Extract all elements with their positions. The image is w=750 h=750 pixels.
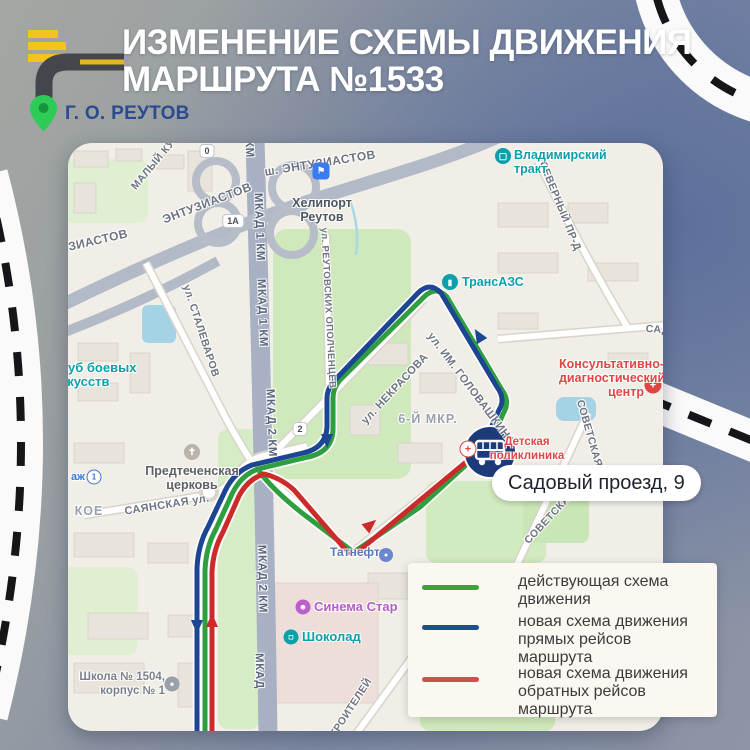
cafe-icon: ◘: [284, 630, 299, 645]
church-icon: ✝: [184, 444, 200, 460]
title-line1: ИЗМЕНЕНИЕ СХЕМЫ ДВИЖЕНИЯ: [122, 24, 691, 61]
poi-detskaya-label: Детская поликлиника: [490, 435, 565, 463]
road-label-km: КМ: [242, 143, 255, 158]
poi-predtech-label: Предтеченская церковь: [145, 464, 238, 492]
poi-klub-label: Клуб боевых искусств: [68, 361, 136, 389]
poi-circle-icon: 1: [87, 470, 102, 485]
road-badge-0: 0: [199, 144, 214, 158]
clinic-cross-icon: +: [460, 441, 477, 458]
poi-cinema-label: Синема Стар: [314, 600, 398, 614]
location-label: Г. О. РЕУТОВ: [65, 103, 190, 125]
poi-azh-label: аж: [71, 470, 85, 484]
school-icon: ●: [165, 677, 180, 692]
stop-address-callout: Садовый проезд, 9: [492, 465, 701, 501]
mall-icon: ▢: [495, 148, 511, 164]
gas-station-icon: ●: [379, 548, 393, 562]
district-label-koe: КОЕ: [75, 504, 104, 518]
street-label-sado: САДО: [645, 323, 663, 337]
poi-vladimirsky-label: Владимирский тракт: [514, 148, 607, 176]
road-label-mkad1km: МКАД 1 КМ: [252, 193, 266, 262]
cinema-icon: ☻: [296, 600, 311, 615]
poi-kons-label: Консультативно- диагностический центр: [559, 357, 644, 399]
poster: { "header": { "title_line1": "ИЗМЕНЕНИЕ …: [0, 0, 750, 750]
title-line2: МАРШРУТА №1533: [122, 61, 691, 98]
road-label-mkad1km: МКАД 1 КМ: [255, 279, 269, 348]
district-label-mkr6: 6-Й МКР.: [398, 412, 458, 426]
road-label-mkad2km: МКАД 2 КМ: [264, 389, 278, 458]
poi-transazs-label: ТрансАЗС: [462, 275, 524, 289]
legend-label-current: действующая схема движения: [518, 573, 700, 609]
poi-school-label: Школа № 1504, корпус № 1: [79, 670, 165, 698]
poi-shokolad-label: Шоколад: [302, 630, 361, 644]
legend-item-return: новая схема движения обратных рейсов мар…: [422, 665, 700, 719]
road-badge-1a: 1А: [222, 214, 244, 228]
legend-label-forward: новая схема движения прямых рейсов маршр…: [518, 613, 700, 667]
mostransavto-logo: [28, 26, 124, 98]
road-badge-2: 2: [292, 422, 307, 436]
legend-item-current: действующая схема движения: [422, 573, 700, 609]
legend-swatch-blue: [422, 625, 479, 630]
helipad-icon: ⚑: [313, 163, 330, 180]
road-label-mkad: МКАД: [253, 653, 266, 689]
road-label-mkad2km: МКАД 2 КМ: [255, 545, 268, 614]
location-pin-icon: [30, 95, 57, 132]
gas-station-icon: ▮: [442, 274, 458, 290]
legend-item-forward: новая схема движения прямых рейсов маршр…: [422, 613, 700, 667]
legend-panel: действующая схема движения новая схема д…: [408, 563, 717, 717]
legend-swatch-green: [422, 585, 479, 590]
legend-label-return: новая схема движения обратных рейсов мар…: [518, 665, 700, 719]
poi-helipad-label: Хелипорт Реутов: [292, 196, 352, 224]
legend-swatch-red: [422, 677, 479, 682]
logo-stripe-icon: [28, 30, 58, 38]
location-row: Г. О. РЕУТОВ: [30, 95, 190, 132]
page-title: ИЗМЕНЕНИЕ СХЕМЫ ДВИЖЕНИЯ МАРШРУТА №1533: [122, 24, 691, 98]
